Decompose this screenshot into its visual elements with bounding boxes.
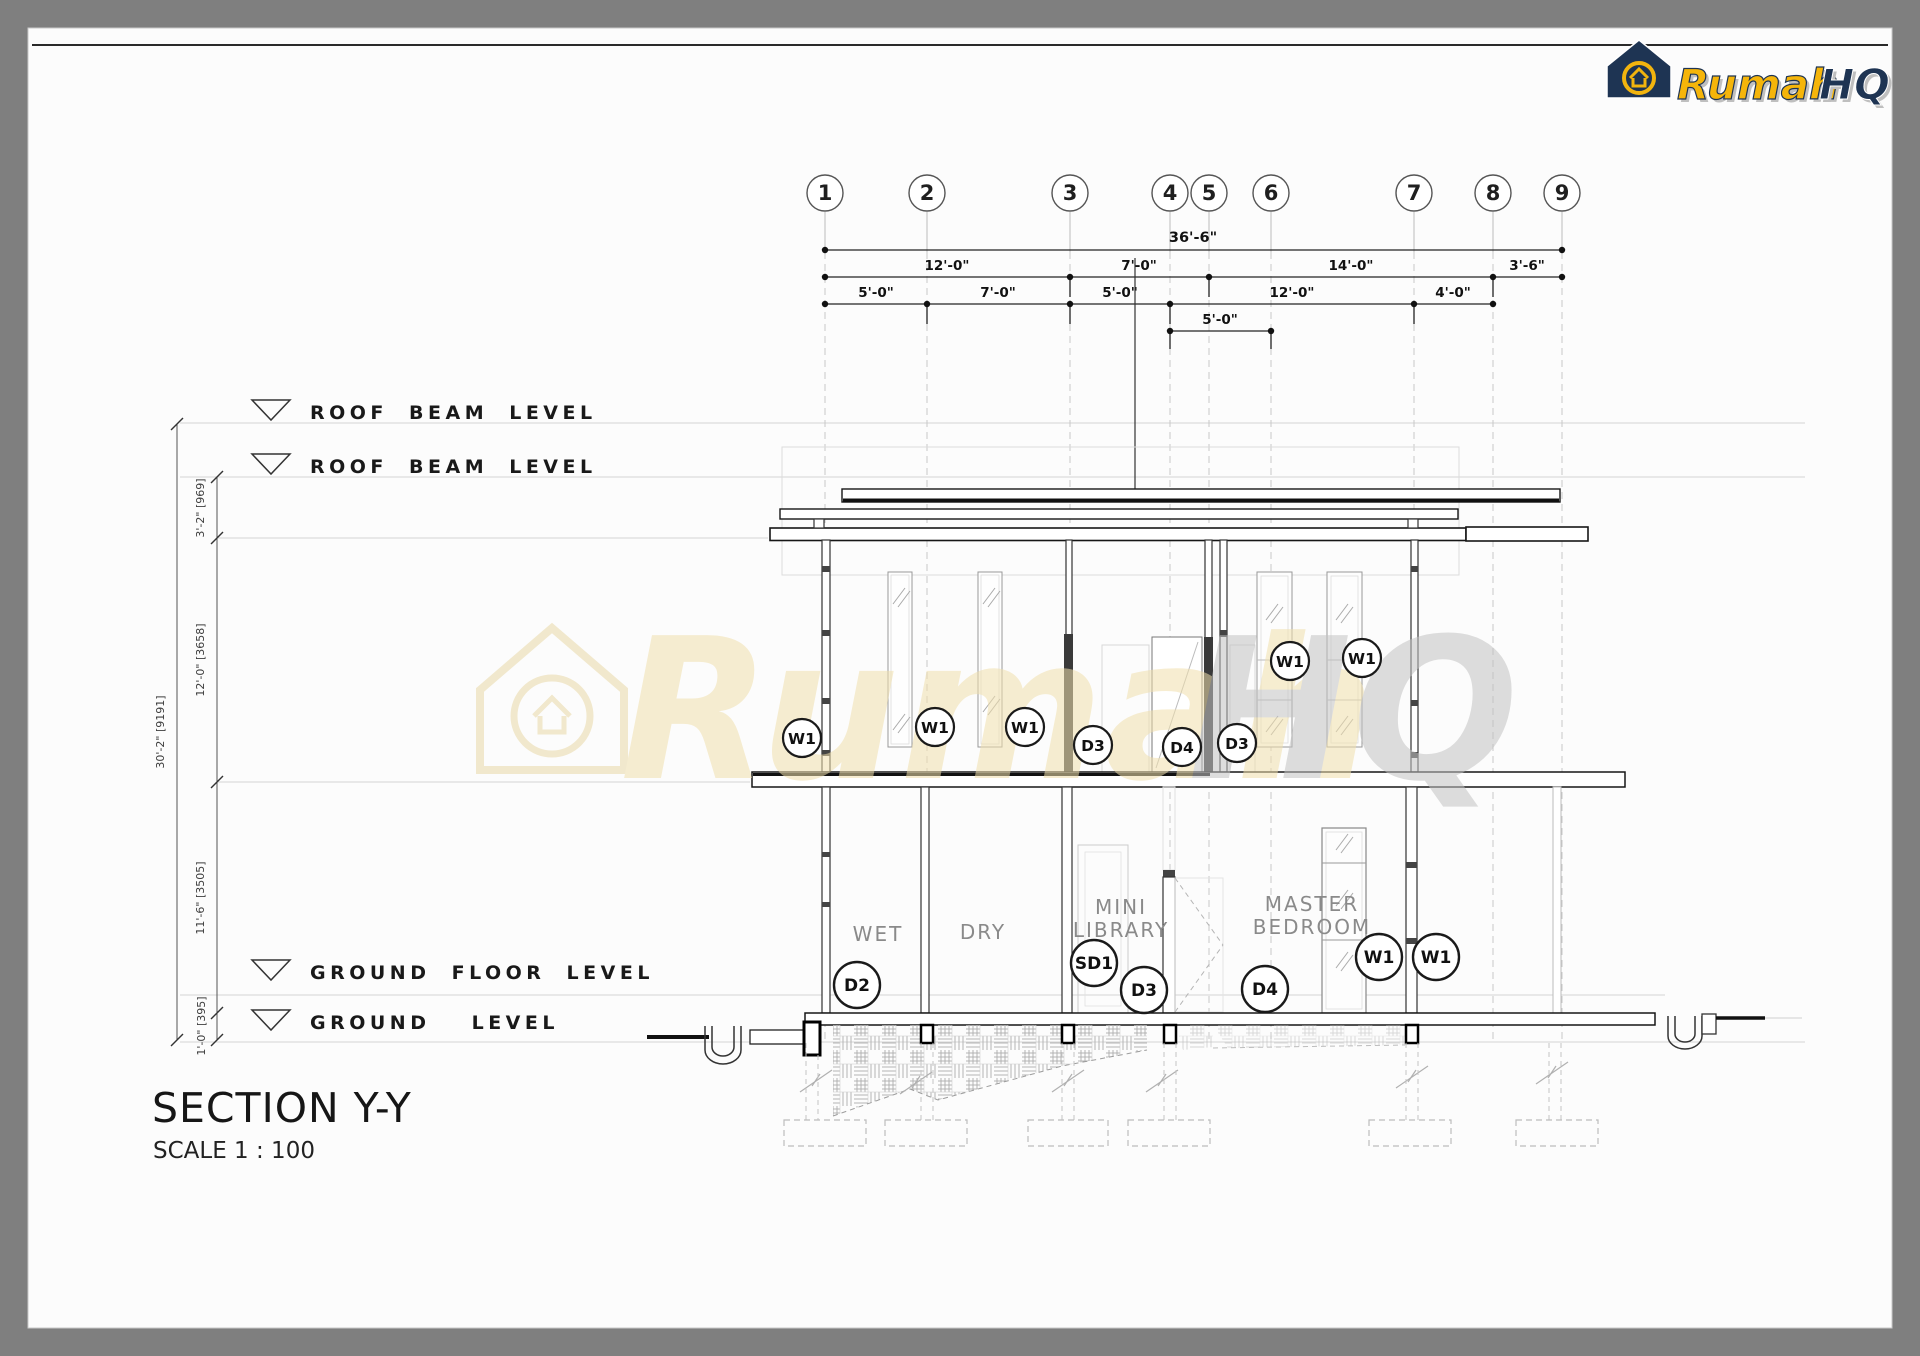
grid-bubble-4: 4 <box>1163 181 1178 205</box>
dim-row3-1: 5'-0" <box>858 285 894 301</box>
dim-row3-3: 5'-0" <box>1102 285 1138 301</box>
tag-ground-w1-b: W1 <box>1421 948 1452 968</box>
tag-upper-d4: D4 <box>1170 739 1194 757</box>
dim-row2-1: 12'-0" <box>925 258 970 274</box>
tag-upper-w1-b: W1 <box>921 719 949 737</box>
grid-bubble-7: 7 <box>1407 181 1422 205</box>
room-dry: DRY <box>960 920 1006 944</box>
tag-ground-w1-a: W1 <box>1364 948 1395 968</box>
label-roof-beam-level-1: ROOF BEAM LEVEL <box>310 402 597 424</box>
grid-bubble-1: 1 <box>818 181 833 205</box>
vdim-seg-1: 3'-2" [969] <box>194 478 207 537</box>
tag-upper-w1-d: W1 <box>1276 653 1304 671</box>
section-drawing: 1 2 3 4 5 6 7 8 9 36'-6" 12'-0" 7'-0" 14… <box>0 0 1920 1356</box>
dim-overall: 36'-6" <box>1169 230 1217 246</box>
tag-ground-sd1: SD1 <box>1075 954 1113 974</box>
room-master-bedroom-line2: BEDROOM <box>1253 915 1371 939</box>
dim-row2-4: 3'-6" <box>1509 258 1545 274</box>
dim-row3-4: 12'-0" <box>1270 285 1315 301</box>
vdim-seg-3: 11'-6" [3505] <box>194 861 207 934</box>
dim-row3-2: 7'-0" <box>980 285 1016 301</box>
watermark-text-secondary: HQ <box>1188 597 1519 825</box>
drawing-scale: SCALE 1 : 100 <box>153 1138 315 1164</box>
drawing-sheet-stage: 1 2 3 4 5 6 7 8 9 36'-6" 12'-0" 7'-0" 14… <box>0 0 1920 1356</box>
room-mini-library-line2: LIBRARY <box>1073 918 1169 942</box>
grid-bubble-9: 9 <box>1555 181 1570 205</box>
tag-upper-w1-e: W1 <box>1348 650 1376 668</box>
tag-upper-w1-c: W1 <box>1011 719 1039 737</box>
vdim-overall: 30'-2" [9191] <box>154 695 167 768</box>
grid-bubble-5: 5 <box>1202 181 1217 205</box>
dim-row3-5: 4'-0" <box>1435 285 1471 301</box>
grid-bubble-6: 6 <box>1264 181 1279 205</box>
vdim-seg-4: 1'-0" [395] <box>195 996 208 1055</box>
logo-text-primary: Rumah <box>1677 60 1839 109</box>
room-wet: WET <box>853 922 904 946</box>
tag-ground-d4: D4 <box>1252 980 1278 1000</box>
room-master-bedroom-line1: MASTER <box>1265 892 1359 916</box>
dim-row2-2: 7'-0" <box>1121 258 1157 274</box>
vdim-seg-2: 12'-0" [3658] <box>194 623 207 696</box>
dim-row2-3: 14'-0" <box>1329 258 1374 274</box>
logo-text-secondary: HQ <box>1819 60 1890 109</box>
label-roof-beam-level-2: ROOF BEAM LEVEL <box>310 456 597 478</box>
tag-ground-d3: D3 <box>1131 981 1157 1001</box>
tag-upper-d3-a: D3 <box>1081 737 1105 755</box>
grid-bubble-2: 2 <box>920 181 935 205</box>
watermark: Rumah HQ <box>480 597 1519 825</box>
label-ground-floor-level: GROUND FLOOR LEVEL <box>310 962 654 984</box>
room-mini-library-line1: MINI <box>1095 895 1147 919</box>
drawing-title: SECTION Y-Y <box>152 1084 412 1132</box>
tag-ground-d2: D2 <box>844 976 870 996</box>
grid-bubble-8: 8 <box>1486 181 1501 205</box>
earth-hatch-right <box>1213 1025 1405 1048</box>
label-ground-level: GROUND LEVEL <box>310 1012 559 1034</box>
dim-row4-1: 5'-0" <box>1202 312 1238 328</box>
tag-upper-w1-a: W1 <box>788 730 816 748</box>
grid-bubble-3: 3 <box>1063 181 1078 205</box>
tag-upper-d3-b: D3 <box>1225 735 1249 753</box>
